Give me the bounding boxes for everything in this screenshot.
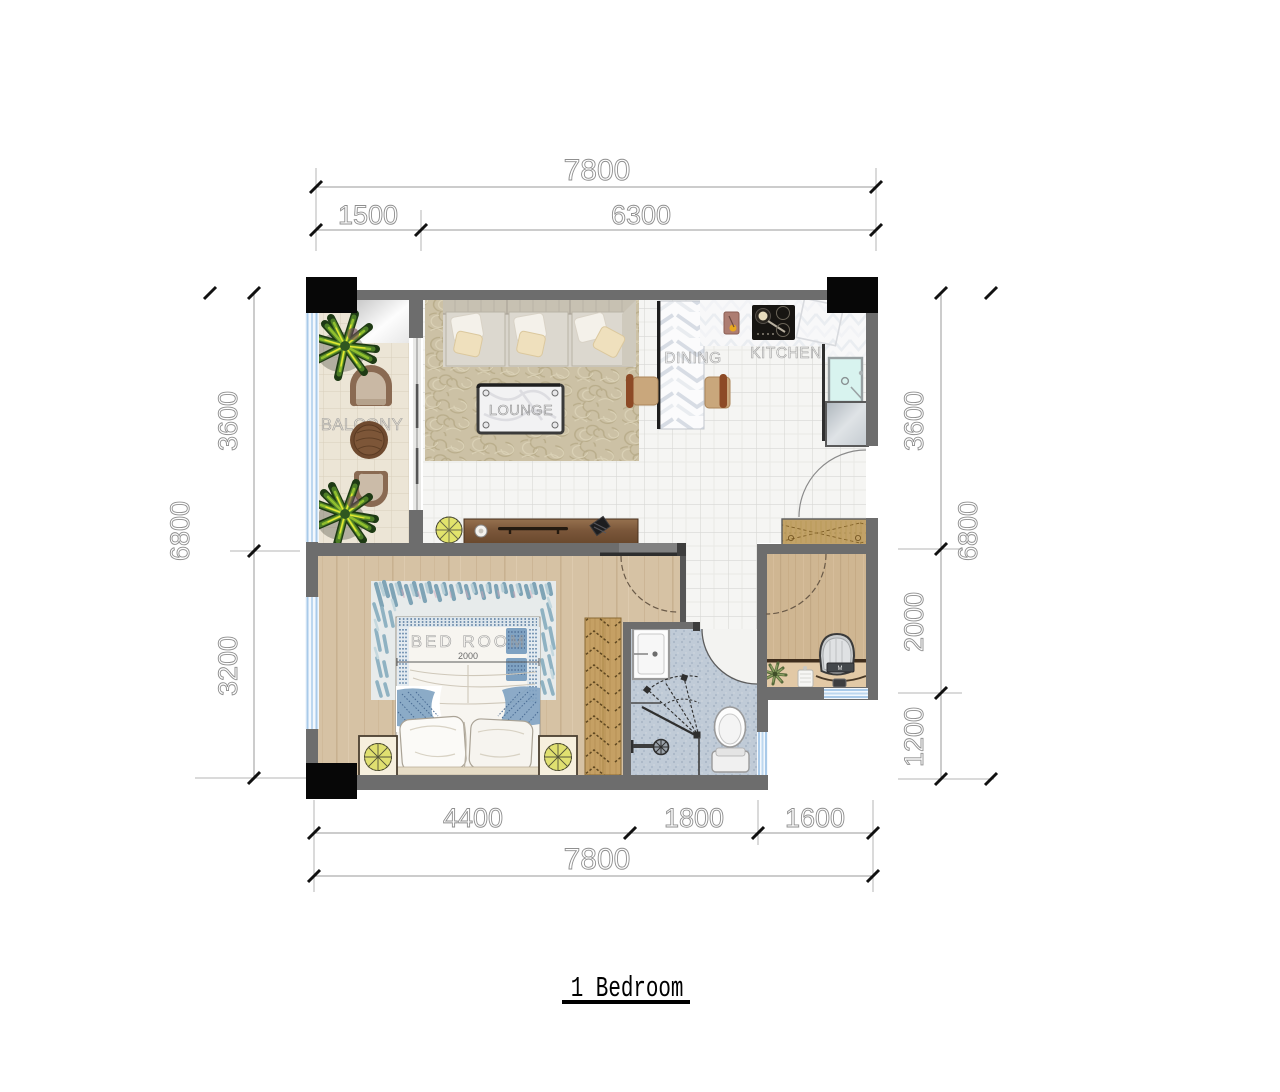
svg-text:6300: 6300: [611, 200, 671, 230]
svg-text:1500: 1500: [338, 200, 398, 230]
svg-text:3600: 3600: [899, 391, 929, 451]
svg-text:KITCHEN: KITCHEN: [750, 345, 822, 362]
svg-text:2000: 2000: [899, 592, 929, 652]
svg-text:LOUNGE: LOUNGE: [489, 403, 553, 419]
svg-text:6800: 6800: [953, 501, 983, 561]
svg-text:3600: 3600: [213, 391, 243, 451]
svg-text:2000: 2000: [458, 651, 478, 661]
svg-text:BED ROOM: BED ROOM: [411, 632, 528, 651]
svg-text:1800: 1800: [664, 803, 724, 833]
svg-text:7800: 7800: [564, 843, 631, 876]
svg-text:M: M: [838, 666, 843, 672]
svg-text:7800: 7800: [564, 154, 631, 187]
svg-text:3200: 3200: [213, 636, 243, 696]
svg-text:DINING: DINING: [664, 350, 721, 367]
svg-text:1200: 1200: [899, 707, 929, 767]
svg-text:6800: 6800: [165, 501, 195, 561]
svg-text:4400: 4400: [443, 803, 503, 833]
svg-text:1600: 1600: [785, 803, 845, 833]
